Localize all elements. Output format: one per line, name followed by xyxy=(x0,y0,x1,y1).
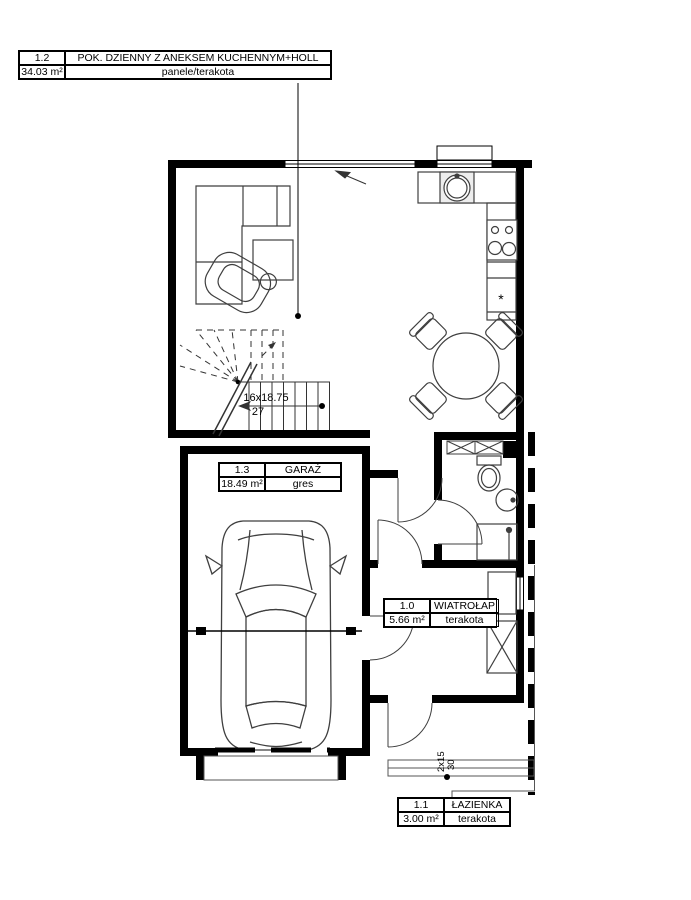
room-number: 1.3 xyxy=(219,463,265,477)
coffee-table xyxy=(253,240,293,280)
room-finish: panele/terakota xyxy=(65,65,331,79)
room-label-living: 1.2 POK. DZIENNY Z ANEKSEM KUCHENNYM+HOL… xyxy=(18,50,332,80)
room-label-garage: 1.3 GARAŻ 18.49 m² gres xyxy=(218,462,342,492)
room-label-hall: 1.0 WIATROŁAP 5.66 m² terakota xyxy=(383,598,497,628)
garage-door xyxy=(204,750,338,780)
window-opening-arrow xyxy=(336,171,366,184)
car-mirror-left xyxy=(206,556,222,574)
room-area: 3.00 m² xyxy=(398,812,444,826)
kitchen-sink xyxy=(444,174,470,201)
room-area: 34.03 m² xyxy=(19,65,65,79)
car-top-view xyxy=(206,521,346,750)
hall-window xyxy=(517,577,524,610)
room-finish: terakota xyxy=(430,613,499,627)
car-mirror-right xyxy=(330,556,346,574)
kitchen-fixtures: * xyxy=(418,172,517,320)
entry-steps-depth-label: 30 xyxy=(446,759,457,770)
door-corridor-to-hall xyxy=(378,520,422,564)
kitchen-window xyxy=(437,146,492,168)
washbasin-icon xyxy=(496,489,518,511)
stove-icon xyxy=(487,220,517,260)
stairs-width-label: 27 xyxy=(252,406,264,418)
room-finish: terakota xyxy=(444,812,510,826)
room-label-bathroom: 1.1 ŁAZIENKA 3.00 m² terakota xyxy=(397,797,511,827)
room-number: 1.2 xyxy=(19,51,65,65)
freezer-mark: * xyxy=(498,291,504,307)
room-name: GARAŻ xyxy=(265,463,341,477)
armchair xyxy=(199,246,279,320)
room-number: 1.0 xyxy=(384,599,430,613)
stairs-run-label: 16x18.75 xyxy=(243,392,288,404)
floor-plan-page: * xyxy=(0,0,691,900)
room-name: WIATROŁAP xyxy=(430,599,499,613)
dining-chair xyxy=(408,311,449,352)
dining-table xyxy=(433,333,499,399)
stairs: 16x18.75 27 xyxy=(180,330,330,436)
room-area: 5.66 m² xyxy=(384,613,430,627)
bathroom-fixtures xyxy=(447,441,518,560)
entry-steps: 2x15 30 xyxy=(388,751,534,780)
garage-gate-line xyxy=(188,627,362,635)
shower-icon xyxy=(477,524,517,560)
bathroom-pillar xyxy=(503,441,517,458)
dining-set xyxy=(408,311,523,420)
door-bathroom xyxy=(438,500,482,544)
room-name: ŁAZIENKA xyxy=(444,798,510,812)
living-room-window xyxy=(285,161,415,168)
room-area: 18.49 m² xyxy=(219,477,265,491)
room-finish: gres xyxy=(265,477,341,491)
dining-chair xyxy=(408,380,449,421)
room-number: 1.1 xyxy=(398,798,444,812)
floor-plan-drawing: * xyxy=(0,0,691,900)
door-entrance xyxy=(388,703,432,747)
windows xyxy=(285,146,524,610)
room-name: POK. DZIENNY Z ANEKSEM KUCHENNYM+HOLL xyxy=(65,51,331,65)
toilet-icon xyxy=(477,456,501,491)
duct-shaft xyxy=(447,441,503,454)
sofa-group xyxy=(196,186,293,320)
